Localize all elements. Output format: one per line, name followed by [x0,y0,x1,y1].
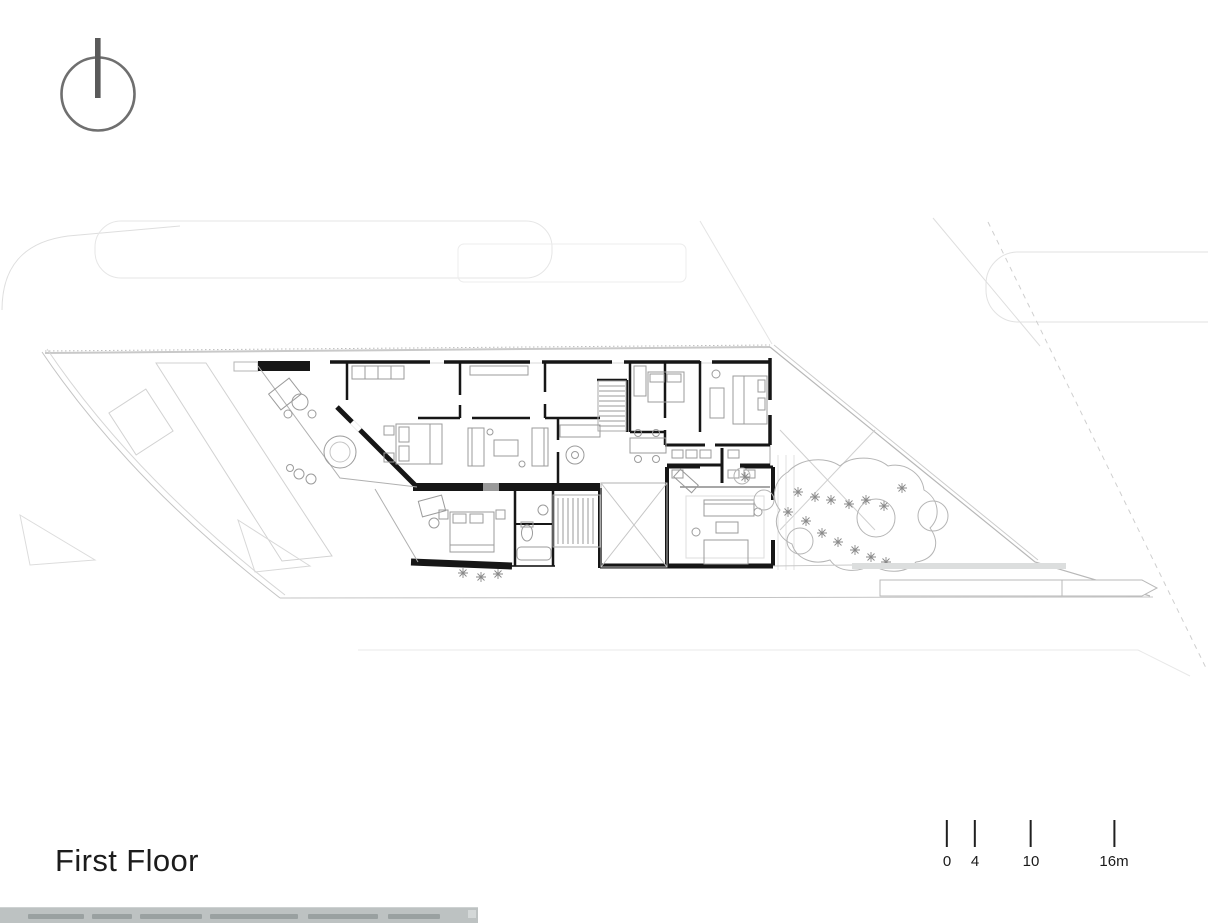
caption-text-blur [92,914,132,919]
dining-furniture [630,430,666,463]
scale-tick-0: 0 [943,820,951,870]
scale-tick-line [1113,820,1115,847]
scale-tick-label: 4 [971,853,979,870]
caption-text-blur [140,914,202,919]
caption-bar-endcap [468,910,476,918]
drawing-sheet: First Floor 0 4 10 16m [0,0,1208,923]
scale-tick-16m: 16m [1099,820,1128,870]
caption-text-blur [28,914,84,919]
living-lower-furniture [674,469,764,564]
bedroom3-furniture [375,489,505,562]
stairs-lower [553,495,600,547]
scale-tick-10: 10 [1023,820,1040,870]
building-walls [234,358,773,568]
master-bedroom-furniture [710,370,767,424]
scale-tick-line [1030,820,1032,847]
bedroom1-furniture [352,366,442,464]
caption-text-blur [388,914,440,919]
paving-strips [852,563,1157,596]
scale-tick-label: 16m [1099,853,1128,870]
sheet-title: First Floor [55,843,199,879]
caption-text-blur [308,914,378,919]
scale-tick-4: 4 [971,820,979,870]
caption-bar[interactable] [0,907,478,923]
living-upper-furniture [468,366,548,467]
bedroom2-furniture [634,366,684,402]
site-context-lines [2,218,1208,676]
caption-text-blur [210,914,298,919]
courtyard-lightwell [601,483,667,567]
north-arrow-icon [40,20,160,140]
scale-tick-line [946,820,948,847]
driveway [20,363,332,572]
scale-tick-line [974,820,976,847]
scale-tick-label: 10 [1023,853,1040,870]
scale-tick-label: 0 [943,853,951,870]
floor-plan-drawing [0,0,1208,923]
kitchen-furniture [560,425,600,464]
site-boundary [42,222,1206,668]
bathroom-furniture [517,505,551,560]
scale-bar: 0 4 10 16m [930,820,1150,872]
stairs-upper [598,381,626,431]
